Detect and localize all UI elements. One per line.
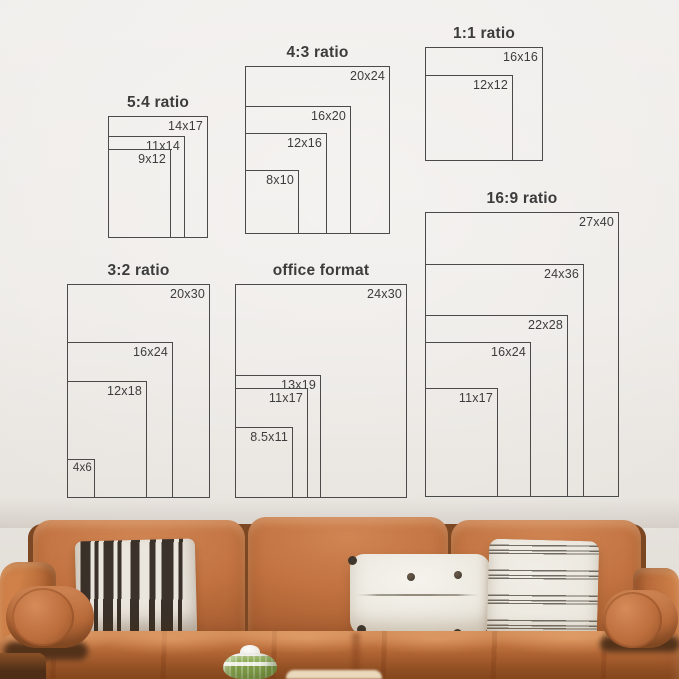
ratio-group-3-2: 3:2 ratio 20x30 16x24 12x18 4x6 [67, 284, 210, 498]
size-label: 20x30 [170, 287, 205, 301]
size-label: 11x17 [269, 391, 303, 405]
ratio-group-office-format: office format 24x30 13x19 11x17 8.5x11 [235, 284, 407, 498]
pillow-seam [355, 594, 480, 596]
ratio-group-1-1: 1:1 ratio 16x16 12x12 [425, 47, 543, 161]
ratio-group-16-9: 16:9 ratio 27x40 24x36 22x28 16x24 11x17 [425, 212, 619, 497]
size-label: 16x24 [133, 345, 168, 359]
size-label: 12x12 [473, 78, 508, 92]
size-label: 4x6 [73, 462, 92, 475]
size-label: 12x18 [107, 384, 142, 398]
size-label: 11x17 [459, 391, 493, 405]
size-label: 16x24 [491, 345, 526, 359]
group-title: 1:1 ratio [425, 25, 543, 42]
vase-body [223, 653, 277, 679]
size-label: 20x24 [350, 69, 385, 83]
coffee-table-edge [286, 670, 382, 679]
striped-pillow-gray [487, 539, 600, 643]
size-label: 14x17 [168, 119, 203, 133]
pillow-pompom [348, 556, 357, 565]
size-rect-8-5x11: 8.5x11 [235, 427, 293, 498]
ratio-group-4-3: 4:3 ratio 20x24 16x20 12x16 8x10 [245, 66, 390, 234]
group-title: 4:3 ratio [245, 44, 390, 61]
bolster-pillow-left-cap [12, 588, 74, 646]
group-title: 3:2 ratio [67, 262, 210, 279]
size-label: 24x36 [544, 267, 579, 281]
size-label: 16x20 [311, 109, 346, 123]
ratio-group-5-4: 5:4 ratio 14x17 11x14 9x12 [108, 116, 208, 238]
size-label: 24x30 [367, 287, 402, 301]
size-rect-12x12: 12x12 [425, 75, 513, 161]
size-label: 27x40 [579, 215, 614, 229]
size-rect-4x6: 4x6 [67, 459, 95, 498]
group-title: office format [235, 262, 407, 279]
size-label: 22x28 [528, 318, 563, 332]
size-rect-11x17: 11x17 [425, 388, 498, 497]
sofa-base-shadow [0, 653, 46, 679]
lumbar-pillow-white [350, 554, 490, 636]
wall-scene: 5:4 ratio 14x17 11x14 9x12 4:3 ratio 20x… [0, 0, 679, 679]
decorative-vase [223, 645, 277, 679]
size-label: 12x16 [287, 136, 322, 150]
size-label: 8x10 [266, 173, 294, 187]
pillow-button [407, 573, 415, 581]
bolster-pillow-right-cap [604, 592, 662, 648]
size-rect-9x12: 9x12 [108, 149, 171, 238]
size-label: 8.5x11 [250, 430, 288, 444]
pillow-button [454, 571, 462, 579]
size-label: 9x12 [138, 152, 166, 166]
size-label: 16x16 [503, 50, 538, 64]
group-title: 5:4 ratio [108, 94, 208, 111]
group-title: 16:9 ratio [425, 190, 619, 207]
size-rect-8x10: 8x10 [245, 170, 299, 234]
